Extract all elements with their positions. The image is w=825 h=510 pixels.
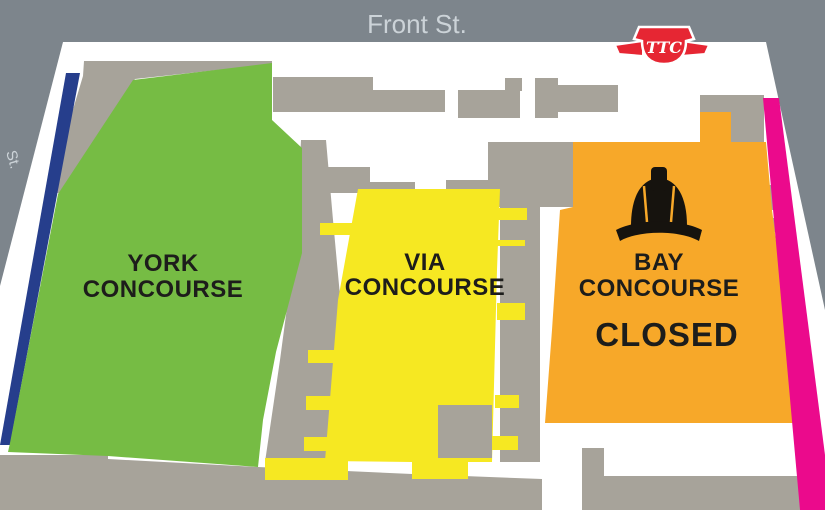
via-concourse-label-line2: CONCOURSE	[345, 274, 506, 301]
building-block	[557, 85, 618, 112]
york-concourse-label-line1: YORK	[127, 250, 199, 277]
bay-concourse-annex	[700, 112, 731, 142]
building-block	[535, 78, 558, 118]
building-block	[273, 77, 373, 91]
building-block	[731, 112, 764, 142]
map-canvas: YORK CONCOURSE VIA CONCOURSE BAY CONCOUR…	[0, 0, 825, 510]
building-block	[505, 78, 522, 91]
via-tab	[308, 350, 342, 363]
hard-hat-ridge	[651, 167, 667, 191]
building-block	[438, 405, 492, 458]
bay-concourse-label-line1: BAY	[634, 249, 684, 276]
building-block-bottom-right	[582, 476, 806, 510]
building-block	[273, 90, 445, 112]
building-block	[582, 448, 604, 478]
via-tab	[306, 396, 340, 410]
via-tab	[304, 437, 340, 451]
bay-concourse-label-line2: CONCOURSE	[579, 275, 740, 302]
via-tab	[497, 303, 525, 320]
via-tab	[265, 458, 348, 480]
via-tab	[490, 436, 518, 450]
via-tab	[495, 240, 525, 246]
building-block	[500, 190, 540, 462]
building-block	[458, 90, 520, 118]
bay-concourse-closed-status: CLOSED	[595, 316, 739, 353]
via-tab	[320, 223, 360, 235]
via-tab	[495, 395, 519, 408]
via-tab	[412, 462, 468, 479]
ttc-logo-monogram: TTC	[646, 38, 682, 57]
front-street-label: Front St.	[367, 9, 467, 39]
york-concourse-label-line2: CONCOURSE	[83, 276, 244, 303]
building-block	[700, 95, 764, 112]
station-concourse-map: YORK CONCOURSE VIA CONCOURSE BAY CONCOUR…	[0, 0, 825, 510]
via-tab	[495, 208, 527, 220]
via-concourse-label-line1: VIA	[404, 249, 446, 276]
